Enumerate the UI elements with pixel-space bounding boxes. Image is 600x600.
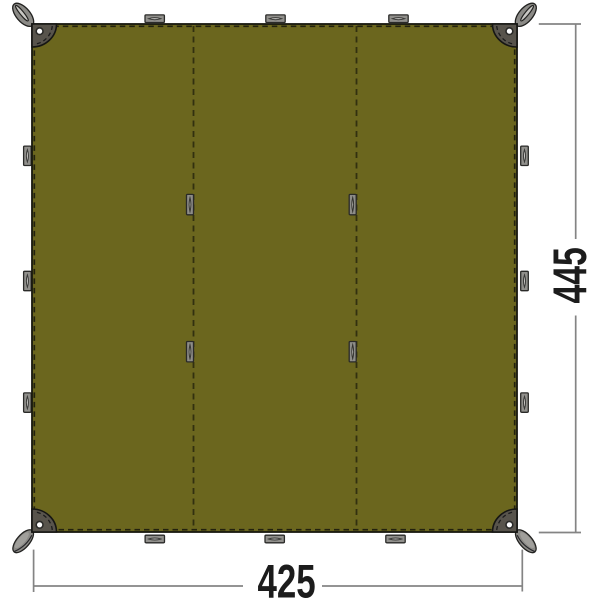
svg-text:425: 425 — [258, 556, 316, 600]
svg-text:445: 445 — [543, 247, 596, 303]
